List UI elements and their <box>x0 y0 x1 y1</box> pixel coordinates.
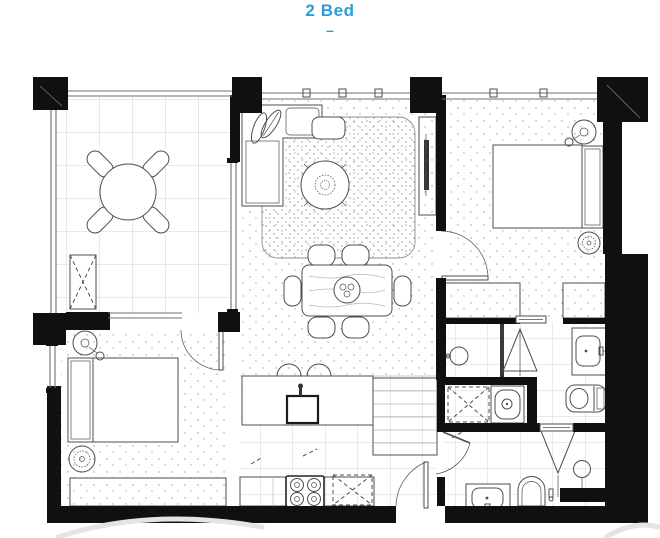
dining-chair <box>284 276 301 306</box>
toilet <box>566 385 606 412</box>
balustrade <box>68 91 232 96</box>
coffee-table <box>301 161 349 209</box>
toilet <box>518 477 545 507</box>
dining-chair <box>342 245 369 266</box>
ottoman <box>312 117 345 139</box>
bed <box>493 145 603 228</box>
window <box>262 93 410 99</box>
window <box>108 313 182 318</box>
planter-bench <box>70 255 96 309</box>
bed <box>68 358 178 442</box>
outdoor-table <box>100 164 156 220</box>
laundry-tub <box>491 386 524 423</box>
bath-bench <box>560 488 606 502</box>
living-room <box>242 105 436 258</box>
dining-table <box>302 265 392 316</box>
dining-chair <box>394 276 411 306</box>
floor-plan <box>0 0 660 538</box>
column <box>33 313 66 345</box>
sink <box>287 396 318 423</box>
watermark-curve <box>606 525 658 537</box>
dining-chair <box>308 317 335 338</box>
island-bench <box>242 376 373 425</box>
sliding-glass-door <box>231 162 236 312</box>
vanity-basin <box>572 328 607 375</box>
dining-chair <box>308 245 335 266</box>
window <box>50 345 55 388</box>
window <box>442 93 597 99</box>
balustrade <box>51 110 56 313</box>
column <box>33 77 68 110</box>
column <box>597 77 648 122</box>
cooktop <box>286 476 324 507</box>
dining-chair <box>342 317 369 338</box>
